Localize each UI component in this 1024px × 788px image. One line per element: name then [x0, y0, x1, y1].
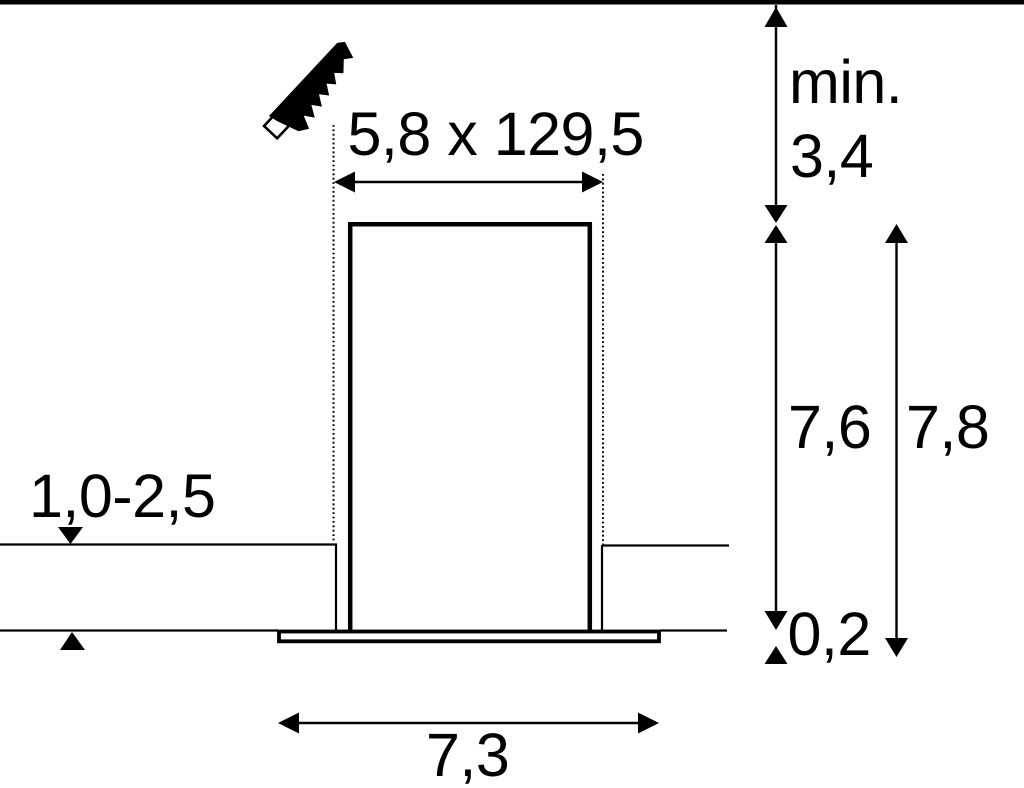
- svg-text:3,4: 3,4: [790, 122, 873, 190]
- svg-text:1,0-2,5: 1,0-2,5: [29, 462, 215, 530]
- svg-text:7,8: 7,8: [906, 393, 989, 461]
- svg-text:7,6: 7,6: [788, 393, 871, 461]
- svg-text:5,8 x 129,5: 5,8 x 129,5: [348, 100, 644, 168]
- svg-text:min.: min.: [789, 48, 902, 116]
- svg-text:0,2: 0,2: [788, 600, 871, 668]
- svg-text:7,3: 7,3: [426, 721, 509, 788]
